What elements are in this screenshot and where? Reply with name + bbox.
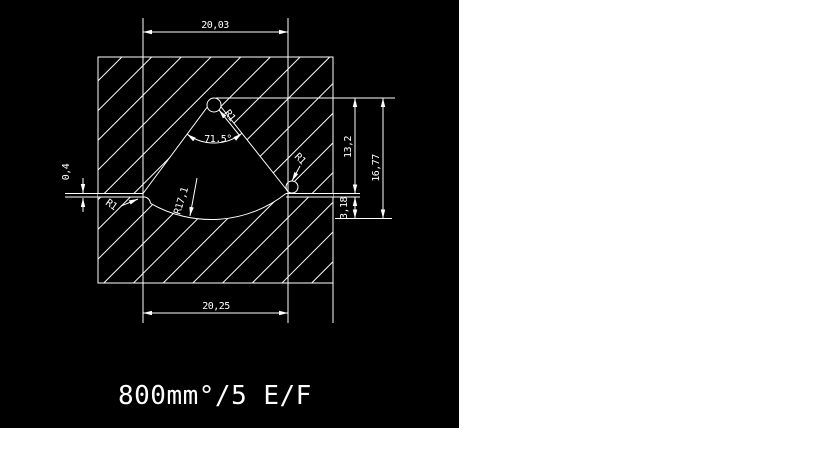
dim-top-width: 20,03 xyxy=(201,20,229,31)
right-slot xyxy=(286,194,333,197)
left-slot xyxy=(98,194,143,197)
dim-right-upper: 13,2 xyxy=(343,135,354,158)
apex-fillet-circle xyxy=(207,98,221,112)
dim-right-total: 16,77 xyxy=(371,154,382,182)
technical-drawing: 20,03 20,25 13,2 16,77 3,18 0,4 71.5° R1… xyxy=(0,0,459,428)
dim-right-lower: 3,18 xyxy=(339,196,350,219)
dim-angle: 71.5° xyxy=(204,134,232,145)
dim-slot-width: 0,4 xyxy=(61,163,72,180)
drawing-caption: 800mm°/5 E/F xyxy=(118,381,312,411)
cad-viewport[interactable]: 20,03 20,25 13,2 16,77 3,18 0,4 71.5° R1… xyxy=(0,0,459,428)
dim-bottom-width: 20,25 xyxy=(202,301,230,312)
cad-application-canvas: 20,03 20,25 13,2 16,77 3,18 0,4 71.5° R1… xyxy=(0,0,819,460)
